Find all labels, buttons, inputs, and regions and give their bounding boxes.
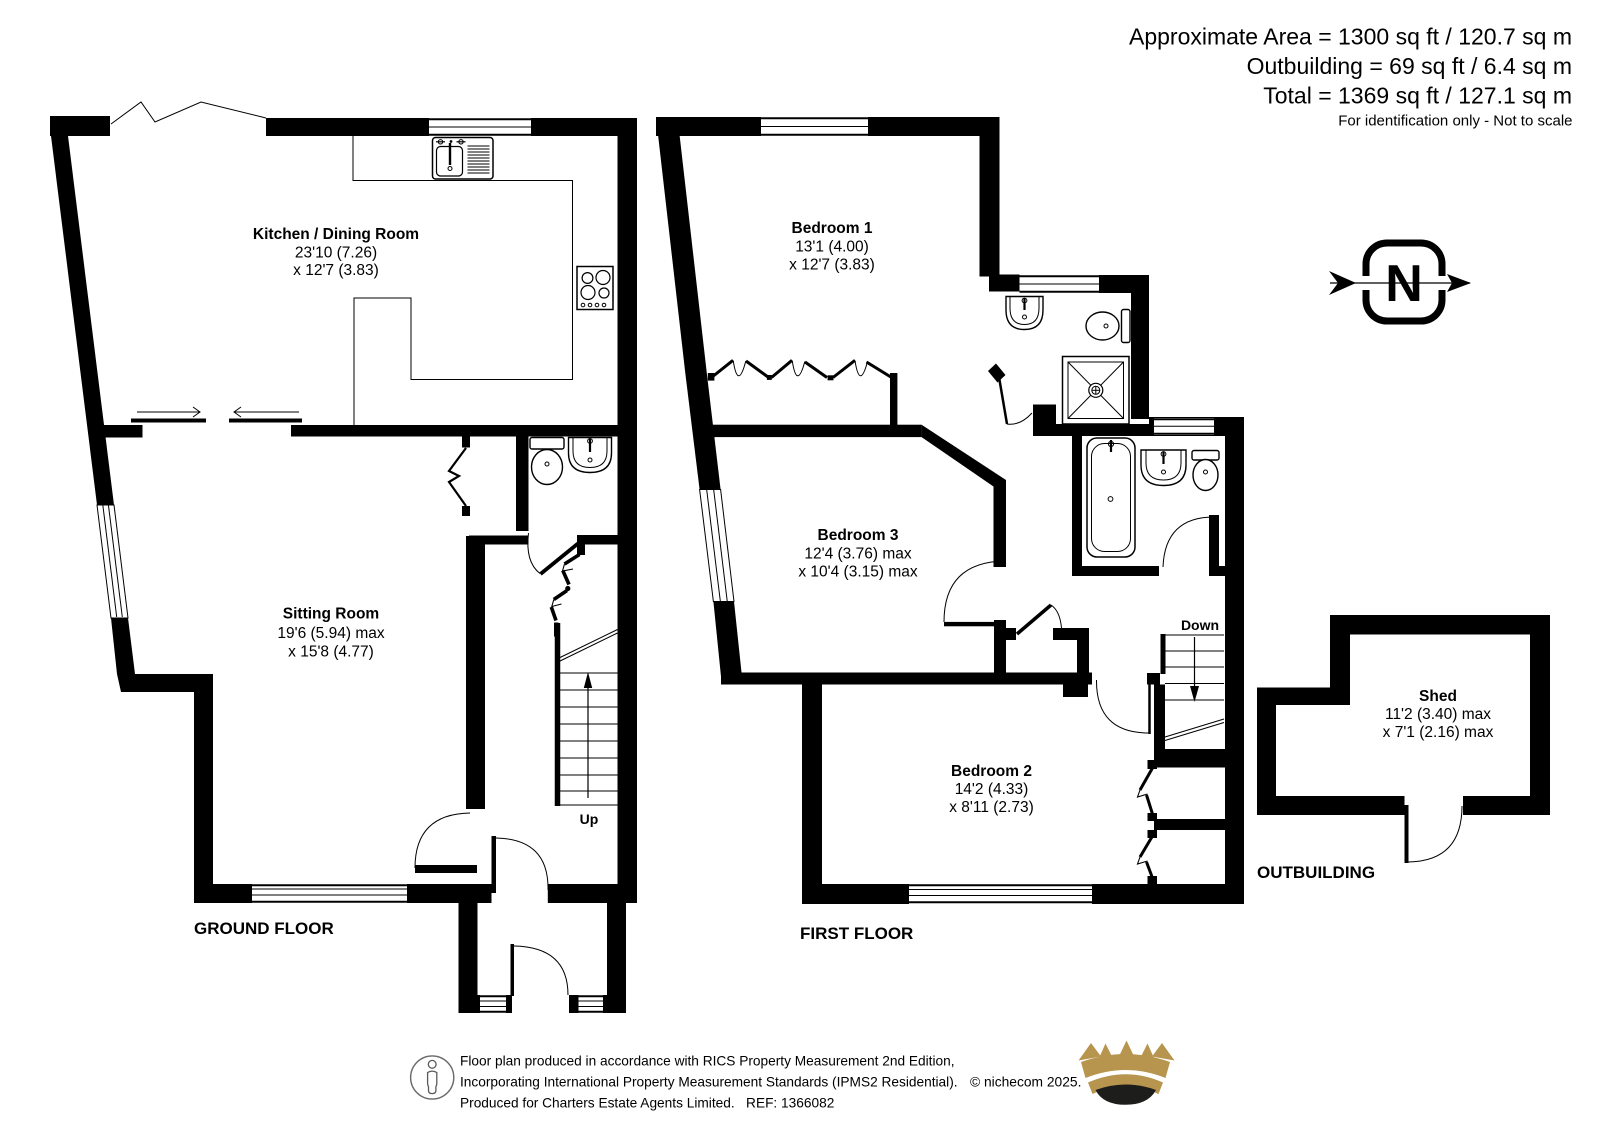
svg-text:N: N	[1385, 255, 1423, 313]
svg-text:Up: Up	[580, 811, 599, 827]
svg-text:19'6 (5.94) max: 19'6 (5.94) max	[277, 625, 384, 642]
svg-text:x 8'11 (2.73): x 8'11 (2.73)	[949, 799, 1034, 816]
svg-text:Sitting Room: Sitting Room	[283, 606, 379, 623]
svg-text:12'4 (3.76) max: 12'4 (3.76) max	[804, 546, 911, 563]
svg-text:Incorporating International Pr: Incorporating International Property Mea…	[460, 1075, 958, 1090]
svg-text:x 12'7 (3.83): x 12'7 (3.83)	[293, 262, 379, 279]
svg-text:Total = 1369 sq ft / 127.1 sq: Total = 1369 sq ft / 127.1 sq m	[1263, 83, 1572, 109]
svg-text:11'2 (3.40) max: 11'2 (3.40) max	[1385, 706, 1491, 723]
svg-text:Approximate Area = 1300 sq ft: Approximate Area = 1300 sq ft / 120.7 sq…	[1129, 24, 1572, 50]
svg-text:x 15'8 (4.77): x 15'8 (4.77)	[288, 644, 374, 661]
svg-text:GROUND FLOOR: GROUND FLOOR	[194, 919, 334, 938]
svg-text:© nichecom 2025.: © nichecom 2025.	[970, 1075, 1081, 1090]
svg-text:Produced for Charters Estate A: Produced for Charters Estate Agents Limi…	[460, 1096, 834, 1111]
svg-text:13'1 (4.00): 13'1 (4.00)	[795, 239, 869, 256]
svg-text:14'2 (4.33): 14'2 (4.33)	[955, 781, 1029, 798]
svg-text:Down: Down	[1181, 617, 1219, 633]
svg-text:FIRST FLOOR: FIRST FLOOR	[800, 924, 913, 943]
svg-text:Bedroom 2: Bedroom 2	[951, 763, 1032, 780]
svg-text:x 7'1 (2.16) max: x 7'1 (2.16) max	[1383, 724, 1494, 741]
svg-text:OUTBUILDING: OUTBUILDING	[1257, 863, 1375, 882]
svg-text:Shed: Shed	[1419, 688, 1457, 705]
svg-text:Floor plan produced in accorda: Floor plan produced in accordance with R…	[460, 1054, 955, 1069]
svg-text:Bedroom 1: Bedroom 1	[792, 220, 873, 237]
svg-text:x 10'4 (3.15) max: x 10'4 (3.15) max	[798, 564, 918, 581]
svg-text:Kitchen / Dining Room: Kitchen / Dining Room	[253, 226, 419, 243]
svg-text:23'10 (7.26): 23'10 (7.26)	[295, 245, 377, 262]
svg-text:Outbuilding = 69 sq ft / 6.4 s: Outbuilding = 69 sq ft / 6.4 sq m	[1247, 53, 1572, 79]
svg-text:Bedroom 3: Bedroom 3	[818, 527, 899, 544]
svg-text:x 12'7 (3.83): x 12'7 (3.83)	[789, 257, 875, 274]
svg-text:For identification only - Not: For identification only - Not to scale	[1338, 113, 1572, 130]
